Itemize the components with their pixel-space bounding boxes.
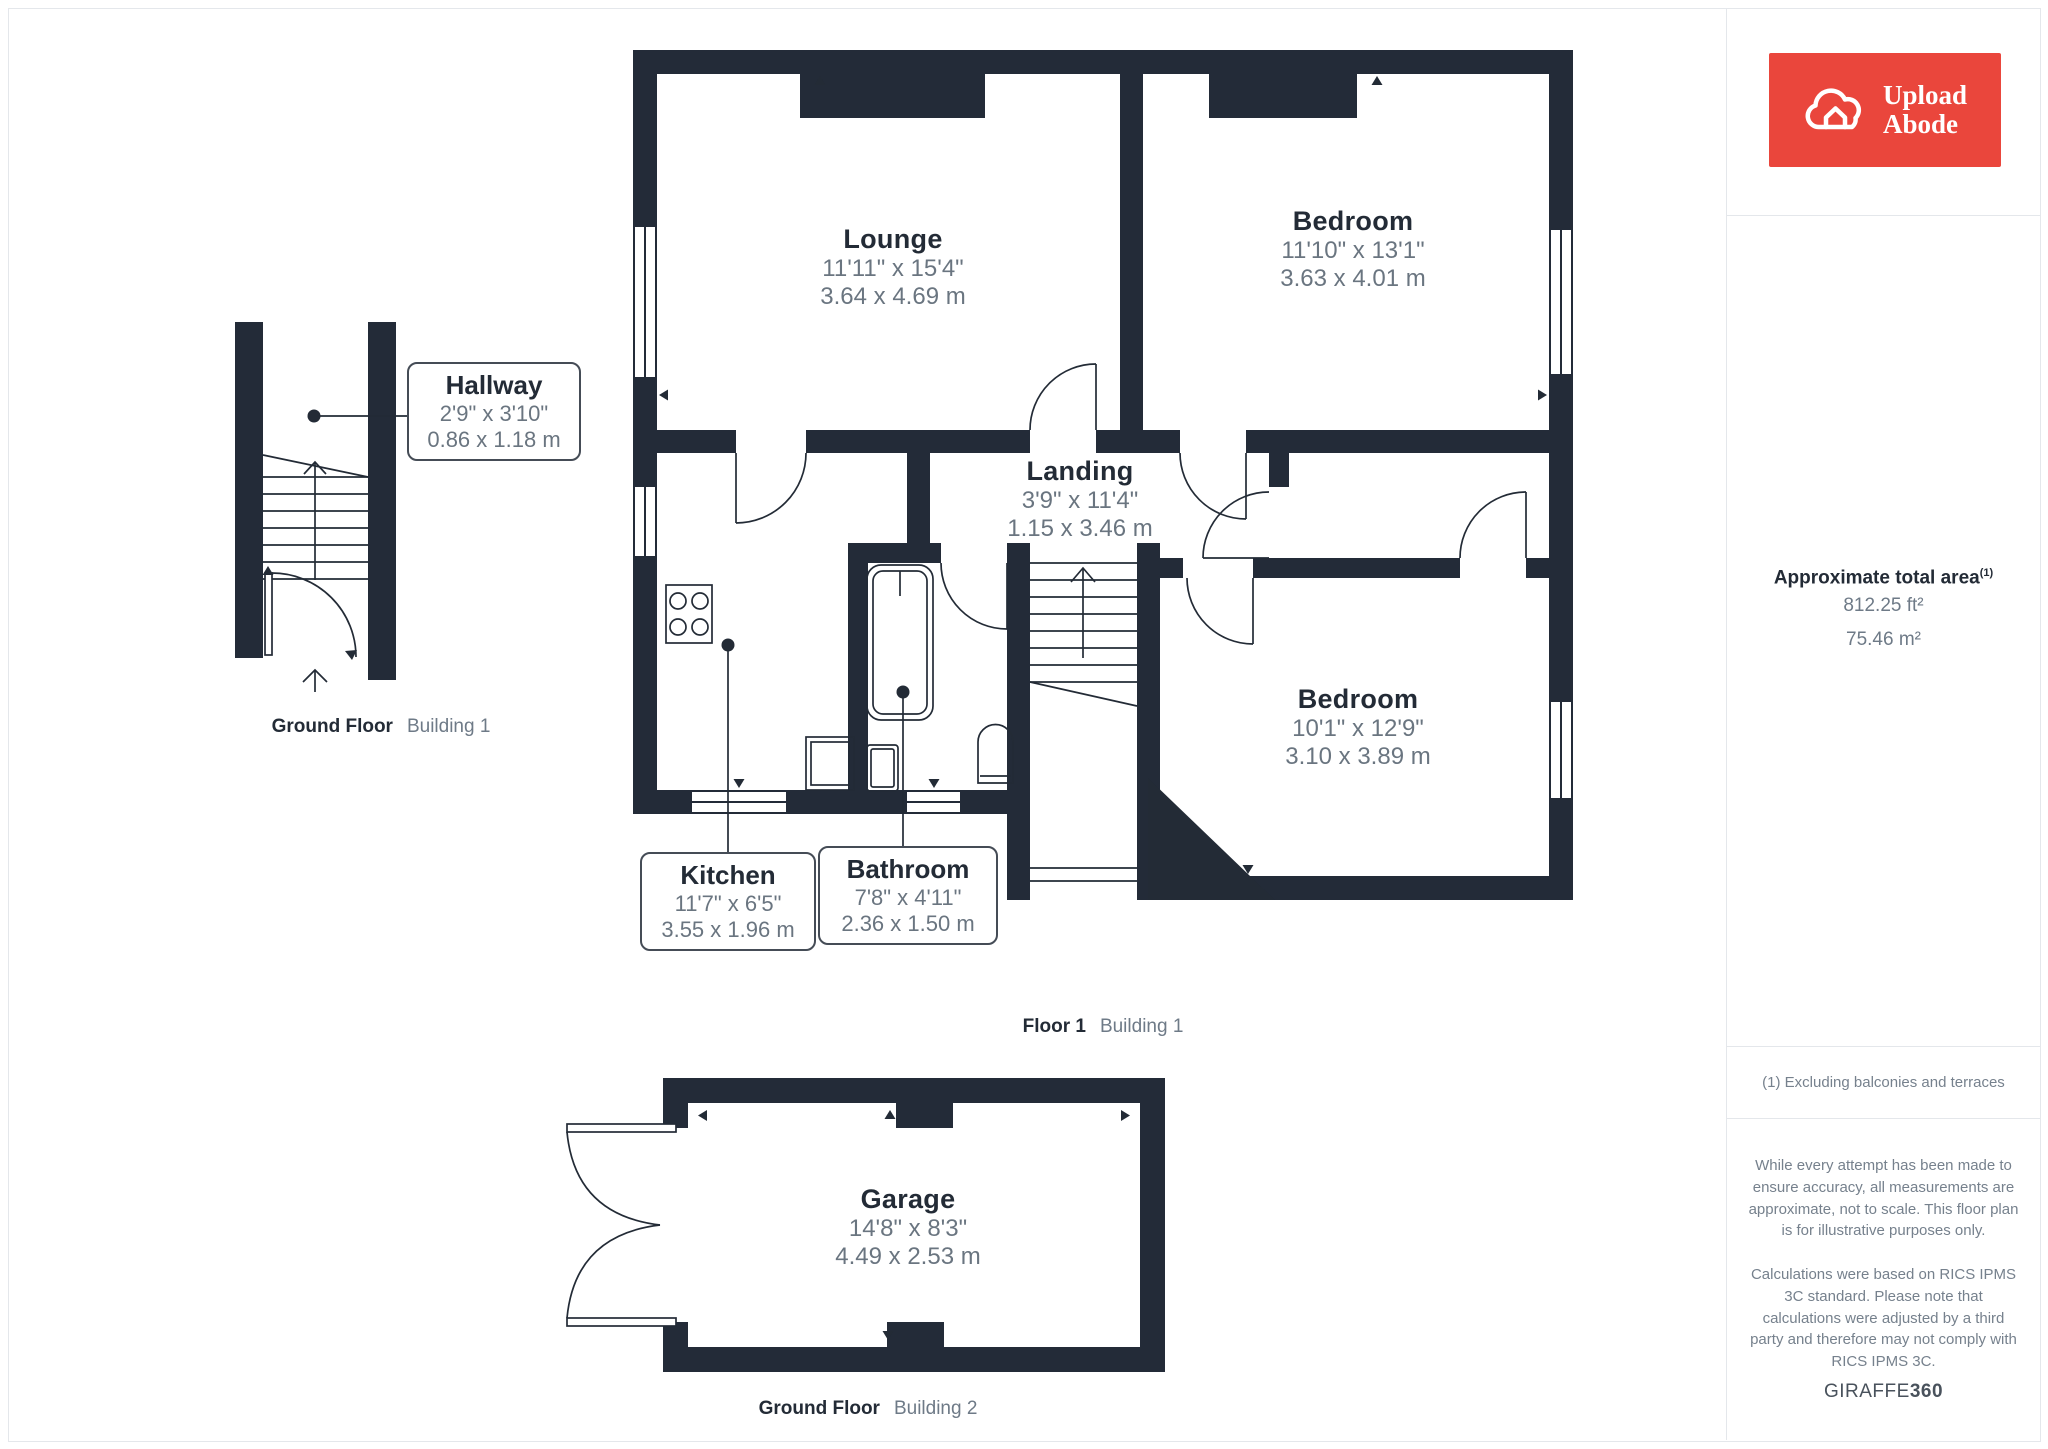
- room-dim-imperial: 11'7" x 6'5": [646, 891, 810, 917]
- upload-abode-logo: Upload Abode: [1769, 53, 2001, 167]
- room-dim-imperial: 14'8" x 8'3": [835, 1215, 980, 1243]
- disclaimer: While every attempt has been made to ens…: [1747, 1155, 2020, 1395]
- room-dim-metric: 3.55 x 1.96 m: [646, 917, 810, 943]
- watermark-bold: 360: [1910, 1381, 1943, 1402]
- callout-kitchen: Kitchen 11'7" x 6'5" 3.55 x 1.96 m: [640, 852, 816, 951]
- room-dim-metric: 4.49 x 2.53 m: [835, 1243, 980, 1271]
- door-swing-icon: [1030, 364, 1096, 430]
- stairs-icon: [263, 455, 368, 580]
- door-swing-icon: [1203, 492, 1269, 558]
- room-dim-imperial: 11'11" x 15'4": [820, 255, 965, 283]
- callout-bathroom: Bathroom 7'8" x 4'11" 2.36 x 1.50 m: [818, 846, 998, 945]
- room-label-bedroom1: Bedroom 11'10" x 13'1" 3.63 x 4.01 m: [1280, 206, 1425, 293]
- callout-dot: [897, 686, 910, 699]
- watermark-regular: GIRAFFE: [1824, 1381, 1910, 1402]
- building-name: Building 1: [407, 716, 490, 737]
- disclaimer-paragraph: While every attempt has been made to ens…: [1747, 1155, 2020, 1242]
- giraffe360-watermark: GIRAFFE360: [1727, 1381, 2040, 1403]
- divider: [1727, 1118, 2040, 1119]
- area-ft: 812.25 ft²: [1727, 589, 2040, 622]
- divider: [1727, 215, 2040, 216]
- door-swing-icon: [1460, 492, 1526, 558]
- room-name: Kitchen: [646, 860, 810, 891]
- room-name: Hallway: [413, 370, 575, 401]
- floor-caption-ground2: Ground FloorBuilding 2: [759, 1398, 978, 1420]
- stove-icon: [666, 585, 712, 643]
- area-summary: Approximate total area(1) 812.25 ft² 75.…: [1727, 567, 2040, 656]
- disclaimer-paragraph: Calculations were based on RICS IPMS 3C …: [1747, 1264, 2020, 1373]
- entrance-arrow-icon: [303, 670, 327, 692]
- garage-door-icon: [567, 1124, 676, 1326]
- room-dim-imperial: 11'10" x 13'1": [1280, 237, 1425, 265]
- kitchen-sink-icon: [806, 737, 854, 790]
- room-name: Garage: [835, 1184, 980, 1215]
- room-dim-imperial: 3'9" x 11'4": [1007, 487, 1152, 515]
- room-dim-metric: 0.86 x 1.18 m: [413, 427, 575, 453]
- room-dim-imperial: 7'8" x 4'11": [824, 885, 992, 911]
- area-m: 75.46 m²: [1727, 623, 2040, 656]
- room-label-landing: Landing 3'9" x 11'4" 1.15 x 3.46 m: [1007, 456, 1152, 543]
- building-name: Building 2: [894, 1398, 977, 1419]
- toilet-icon: [978, 725, 1013, 784]
- floor-name: Ground Floor: [272, 716, 393, 737]
- wall-segment: [1148, 778, 1275, 900]
- room-name: Bathroom: [824, 854, 992, 885]
- floor-name: Ground Floor: [759, 1398, 880, 1419]
- logo-line2: Abode: [1883, 110, 1967, 139]
- door-swing-icon: [736, 453, 806, 523]
- room-dim-metric: 3.64 x 4.69 m: [820, 283, 965, 311]
- room-name: Landing: [1007, 456, 1152, 487]
- door-swing-icon: [1180, 453, 1246, 519]
- logo-line1: Upload: [1883, 81, 1967, 110]
- room-dim-imperial: 10'1" x 12'9": [1285, 715, 1430, 743]
- room-dim-metric: 2.36 x 1.50 m: [824, 911, 992, 937]
- cloud-house-icon: [1803, 82, 1873, 138]
- room-dim-imperial: 2'9" x 3'10": [413, 401, 575, 427]
- room-name: Bedroom: [1285, 684, 1430, 715]
- stairs-icon: [1030, 563, 1137, 881]
- room-name: Lounge: [820, 224, 965, 255]
- floor-caption-ground1: Ground FloorBuilding 1: [272, 716, 491, 738]
- floor-caption-floor1: Floor 1Building 1: [1023, 1016, 1184, 1038]
- info-sidebar: Upload Abode Approximate total area(1) 8…: [1726, 9, 2040, 1440]
- sink-icon: [867, 745, 898, 791]
- footnote: (1) Excluding balconies and terraces: [1727, 1046, 2040, 1118]
- room-dim-metric: 3.10 x 3.89 m: [1285, 743, 1430, 771]
- callout-dot: [308, 410, 321, 423]
- room-label-lounge: Lounge 11'11" x 15'4" 3.64 x 4.69 m: [820, 224, 965, 311]
- footnote-marker: (1): [1980, 567, 1993, 579]
- door-swing-icon: [263, 566, 358, 660]
- logo-text: Upload Abode: [1883, 81, 1967, 138]
- door-swing-icon: [941, 563, 1007, 629]
- room-label-bedroom2: Bedroom 10'1" x 12'9" 3.10 x 3.89 m: [1285, 684, 1430, 771]
- callout-hallway: Hallway 2'9" x 3'10" 0.86 x 1.18 m: [407, 362, 581, 461]
- room-dim-metric: 1.15 x 3.46 m: [1007, 515, 1152, 543]
- room-dim-metric: 3.63 x 4.01 m: [1280, 265, 1425, 293]
- room-name: Bedroom: [1280, 206, 1425, 237]
- area-title: Approximate total area(1): [1727, 567, 2040, 589]
- room-label-garage: Garage 14'8" x 8'3" 4.49 x 2.53 m: [835, 1184, 980, 1271]
- door-swing-icon: [1187, 578, 1253, 644]
- building-name: Building 1: [1100, 1016, 1183, 1037]
- callout-dot: [722, 639, 735, 652]
- floor-name: Floor 1: [1023, 1016, 1086, 1037]
